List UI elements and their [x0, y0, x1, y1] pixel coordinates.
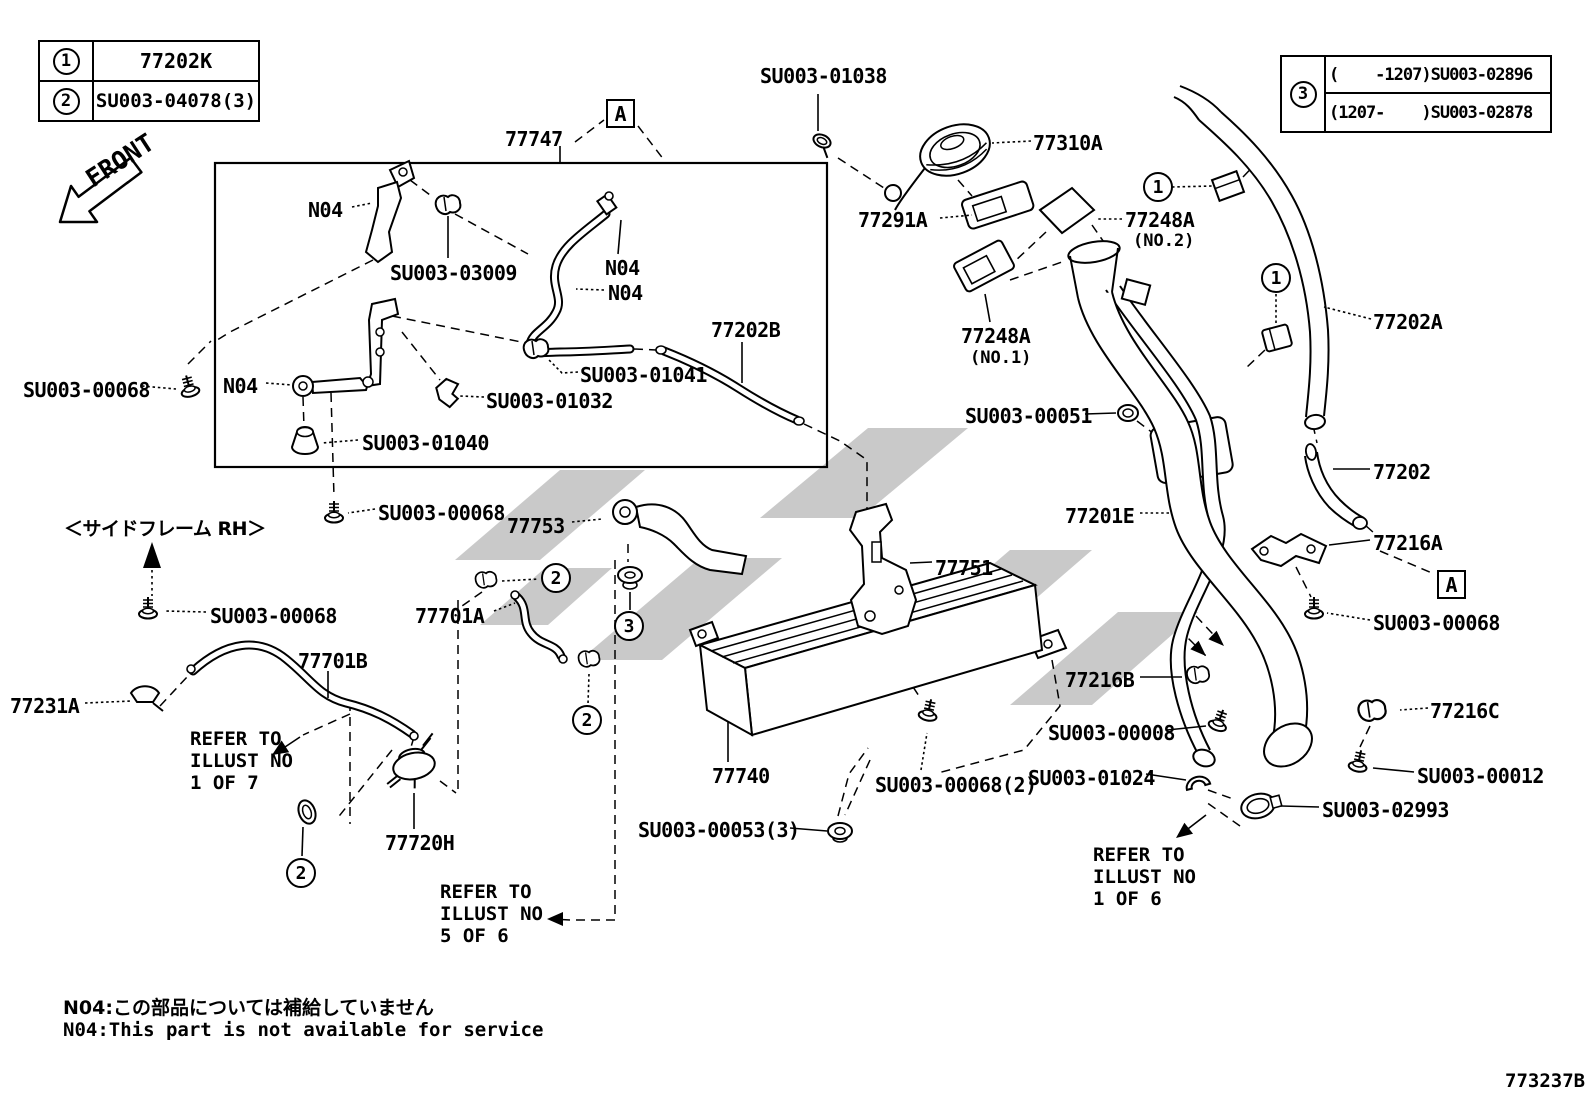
date-range: ( -1207): [1329, 65, 1431, 85]
clip-su003-03009: [436, 195, 461, 214]
clip-77216c: [1358, 700, 1385, 721]
part-label-77740: 77740: [712, 764, 770, 788]
marker-circle-2: 2: [53, 88, 80, 115]
ref-table-right: 3 ( -1207)SU003-02896 (1207- )SU003-0287…: [1280, 55, 1552, 133]
bracket-77753: [613, 500, 746, 574]
bracket-n04-top: [366, 161, 414, 262]
part-label-su003-00012: SU003-00012: [1417, 764, 1544, 788]
nut-su003-00053: [828, 823, 852, 842]
part-label-su003-01032: SU003-01032: [486, 389, 613, 413]
grommet-su003-01040: [292, 427, 318, 454]
clamp-block-right: [1262, 324, 1293, 352]
ref-part-number: SU003-02896: [1431, 65, 1533, 85]
part-label-n04-hose-lower: N04: [608, 281, 643, 305]
part-label-su003-00068-sideframe: SU003-00068: [210, 604, 337, 628]
ref-table-left: 1 77202K 2 SU003-04078(3): [38, 40, 260, 122]
part-label-su003-00068-box-left: SU003-00068: [23, 378, 150, 402]
part-label-n04-bottom: N04: [223, 374, 258, 398]
marker-circle-1: 1: [53, 48, 80, 75]
date-range: (1207- ): [1329, 103, 1431, 123]
part-label-77310a: 77310A: [1033, 131, 1102, 155]
diagram-artwork: FRONT: [0, 0, 1592, 1099]
valve-77720h: [379, 733, 443, 793]
part-label-su003-01038: SU003-01038: [760, 64, 887, 88]
refer-note-illust-1of7: REFER TO ILLUST NO 1 OF 7: [190, 728, 293, 794]
clip-callout2-lower: [579, 651, 600, 667]
screw-su003-00008: [1207, 707, 1231, 733]
part-label-77248a-no1: 77248A: [961, 324, 1030, 348]
footer-note-en: N04:This part is not available for servi…: [63, 1019, 543, 1041]
part-label-su003-02993: SU003-02993: [1322, 798, 1449, 822]
front-arrow: FRONT: [60, 128, 159, 222]
ref-table-right-row-2: (1207- )SU003-02878: [1326, 94, 1550, 131]
callout-circle-2-clamp-left: 2: [286, 858, 316, 888]
hose-77202: [1305, 443, 1367, 529]
part-label-77231a: 77231A: [10, 694, 79, 718]
ref-table-right-row-1: ( -1207)SU003-02896: [1326, 57, 1550, 94]
part-label-su003-00051: SU003-00051: [965, 404, 1092, 428]
detail-marker-a-top: A: [606, 99, 635, 128]
clamp-callout2-left: [295, 798, 318, 826]
part-label-77216c: 77216C: [1430, 699, 1499, 723]
marker-circle-3: 3: [1290, 81, 1317, 108]
screw-su003-00068-sideframe: [139, 597, 157, 619]
part-label-77753: 77753: [507, 514, 565, 538]
part-label-su003-00053-x3: SU003-00053(3): [638, 818, 800, 842]
dashed-construction-lines: [160, 120, 1432, 920]
part-label-su003-01024: SU003-01024: [1028, 766, 1155, 790]
part-label-77202a: 77202A: [1373, 310, 1442, 334]
grommet-callout3: [618, 567, 642, 589]
ref-part-number: SU003-04078(3): [94, 82, 258, 120]
part-label-77701b: 77701B: [298, 649, 367, 673]
footer-note-jp: N04:この部品については補給していません: [63, 993, 434, 1020]
part-label-77751: 77751: [935, 556, 993, 580]
parts-diagram-page: FRONT 1 77202K 2 SU003-04078(3) 3 ( -120…: [0, 0, 1592, 1099]
clip-callout2-upper: [476, 572, 497, 588]
side-frame-note: ＜サイドフレーム RH＞: [64, 514, 266, 541]
plug-su003-01032: [435, 376, 463, 409]
part-label-su003-00068-right: SU003-00068: [1373, 611, 1500, 635]
ref-table-left-row-2: 2 SU003-04078(3): [40, 82, 258, 120]
screw-su003-00068-box-left: [177, 373, 200, 398]
drawing-number: 773237B: [1505, 1070, 1585, 1092]
part-label-su003-01041: SU003-01041: [580, 363, 707, 387]
assembly-box-77747: [215, 163, 827, 467]
part-label-77201e: 77201E: [1065, 504, 1134, 528]
part-label-su003-00068-box-below: SU003-00068: [378, 501, 505, 525]
ref-part-number: SU003-02878: [1431, 103, 1533, 123]
callout-circle-1-hose-clamp: 1: [1261, 263, 1291, 293]
part-label-77720h: 77720H: [385, 831, 454, 855]
pad-77248a-no2: [1040, 188, 1094, 233]
part-label-77248a-no2: 77248A: [1125, 208, 1194, 232]
part-label-77291a: 77291A: [858, 208, 927, 232]
ref-table-left-row-1: 1 77202K: [40, 42, 258, 82]
clamp-su003-01024: [1184, 774, 1210, 790]
clip-77216b: [1187, 666, 1209, 683]
part-label-77701a: 77701A: [415, 604, 484, 628]
part-label-77747: 77747: [505, 127, 563, 151]
part-label-n04-hose-upper: N04: [605, 256, 640, 280]
part-label-su003-00068-x2: SU003-00068(2): [875, 773, 1037, 797]
clip-su003-01041: [524, 339, 549, 358]
part-label-77248a-no2-sub: (NO.2): [1133, 231, 1194, 251]
callout-circle-2-clip-lower: 2: [572, 705, 602, 735]
callout-circle-3-grommet: 3: [614, 611, 644, 641]
part-label-77216b: 77216B: [1065, 668, 1134, 692]
part-label-77202b: 77202B: [711, 318, 780, 342]
part-label-n04-top: N04: [308, 198, 343, 222]
screw-su003-00068-x2: [918, 697, 940, 722]
bracket-n04-bottom: [293, 299, 398, 396]
rivet-su003-01038: [808, 132, 835, 158]
part-label-77202: 77202: [1373, 460, 1431, 484]
screw-su003-00068-box-below: [325, 501, 343, 523]
hose-77202a: [1174, 86, 1329, 430]
fastener-77231a: [131, 686, 163, 711]
callout-circle-1-filler-top: 1: [1143, 172, 1173, 202]
hose-clamp-su003-02993: [1238, 788, 1283, 822]
ref-part-number: 77202K: [94, 42, 258, 80]
bracket-77216a: [1252, 534, 1326, 566]
detail-marker-a-right: A: [1437, 570, 1466, 599]
part-label-77216a: 77216A: [1373, 531, 1442, 555]
screw-su003-00068-right: [1305, 597, 1323, 619]
pad-77248a-no1: [953, 239, 1016, 293]
screw-su003-00012: [1348, 748, 1370, 773]
part-label-su003-01040: SU003-01040: [362, 431, 489, 455]
part-label-su003-03009: SU003-03009: [390, 261, 517, 285]
nut-su003-00051: [1118, 405, 1138, 421]
bracket-77751: [850, 504, 916, 634]
refer-note-illust-1of6: REFER TO ILLUST NO 1 OF 6: [1093, 844, 1196, 910]
clamp-block-top: [1212, 171, 1244, 201]
callout-circle-2-clip-upper: 2: [541, 563, 571, 593]
refer-note-illust-5of6: REFER TO ILLUST NO 5 OF 6: [440, 881, 543, 947]
inlet-77291a: [961, 180, 1035, 230]
part-label-77248a-no1-sub: (NO.1): [970, 348, 1031, 368]
side-frame-arrow: [143, 542, 161, 596]
part-label-su003-00008: SU003-00008: [1048, 721, 1175, 745]
